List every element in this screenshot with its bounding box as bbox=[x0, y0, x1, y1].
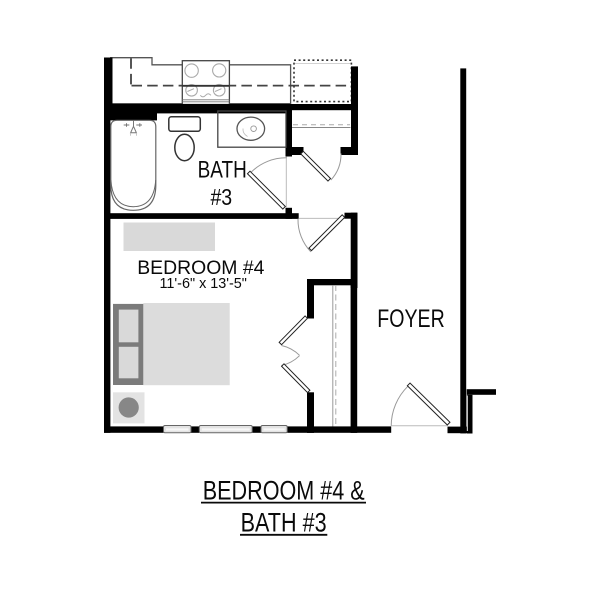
svg-text:BATH #3: BATH #3 bbox=[241, 509, 327, 539]
svg-text:BATH: BATH bbox=[198, 155, 247, 183]
svg-text:#3: #3 bbox=[210, 185, 232, 211]
svg-text:FOYER: FOYER bbox=[377, 305, 444, 333]
svg-text:11'-6" x 13'-5": 11'-6" x 13'-5" bbox=[159, 276, 246, 292]
